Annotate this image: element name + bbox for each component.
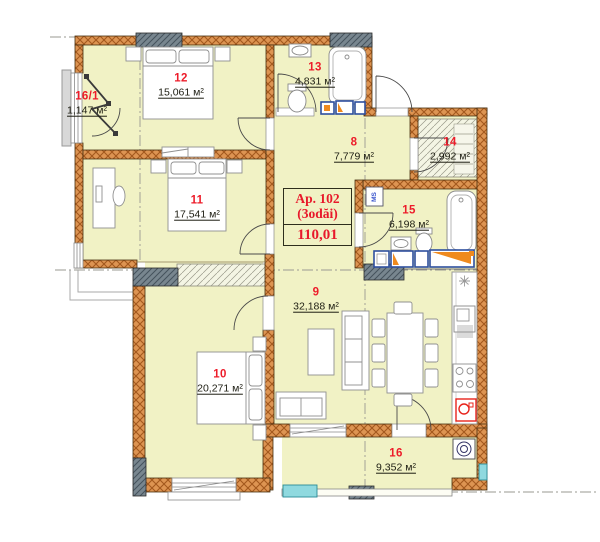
stove-icon <box>453 364 476 392</box>
shaft-label: MS <box>365 188 383 206</box>
kitchen-counter <box>452 272 477 424</box>
terrace-bench <box>283 485 317 497</box>
apartment-rooms: (3odăi) <box>284 207 351 222</box>
boiler-icon <box>456 399 476 421</box>
apartment-info-box: Ap. 102 (3odăi) 110,01 <box>283 188 352 246</box>
floor-plan: 12 15,061 м² 16/1 1,147 м² 11 17,541 м² … <box>0 0 600 542</box>
apartment-total-area: 110,01 <box>284 224 351 245</box>
washing-machine-icon <box>453 439 475 459</box>
apartment-id: Ap. 102 <box>284 192 351 207</box>
floor-plan-drawing <box>0 0 600 542</box>
terrace-planter <box>479 464 487 480</box>
